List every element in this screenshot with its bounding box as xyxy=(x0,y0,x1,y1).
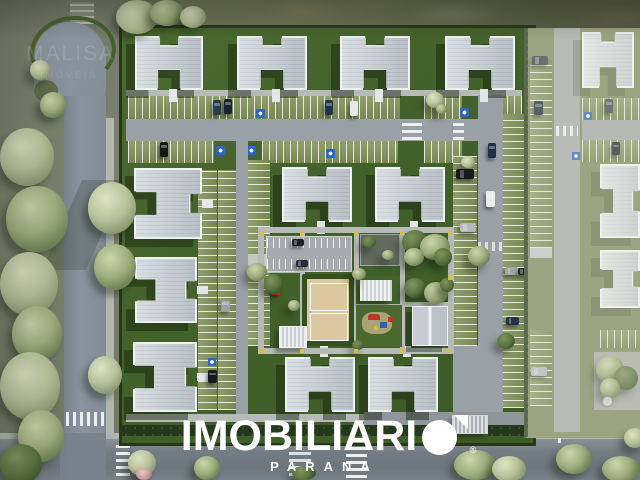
apartment-building xyxy=(134,168,202,239)
parking-stall-lines xyxy=(267,259,349,269)
car xyxy=(505,267,518,275)
court-outline xyxy=(310,283,348,311)
tree xyxy=(461,156,475,168)
apartment-building xyxy=(285,357,355,412)
yellow-path-marker xyxy=(448,276,452,280)
internal-road xyxy=(453,345,503,415)
car xyxy=(325,100,333,115)
yellow-path-marker xyxy=(400,231,404,235)
entrance-walk xyxy=(480,89,488,102)
tree xyxy=(288,300,300,311)
tree xyxy=(94,244,136,290)
entrance-gate xyxy=(452,415,488,434)
tree xyxy=(40,92,66,118)
tree xyxy=(404,278,426,298)
parking-row xyxy=(128,141,214,163)
car xyxy=(488,143,496,158)
yellow-path-marker xyxy=(400,349,404,353)
tree xyxy=(492,456,526,480)
car xyxy=(224,99,232,114)
court-outline xyxy=(310,313,348,341)
tree xyxy=(6,186,68,252)
tree xyxy=(468,246,490,266)
crosswalk xyxy=(66,412,104,426)
car xyxy=(486,191,495,207)
building-roof xyxy=(412,306,448,346)
pergola xyxy=(360,280,392,301)
accessible-parking-icon xyxy=(460,108,469,117)
play-structure-red xyxy=(368,314,380,320)
tree xyxy=(292,466,316,480)
pavilion xyxy=(279,326,307,348)
tree xyxy=(497,333,515,349)
tree xyxy=(0,444,42,480)
yellow-path-marker xyxy=(300,349,304,353)
yellow-path-marker xyxy=(259,231,263,235)
entrance-walk xyxy=(375,89,383,102)
apartment-building xyxy=(282,167,352,222)
accessible-parking-icon xyxy=(256,109,265,118)
apartment-building xyxy=(445,36,515,90)
hedge xyxy=(122,425,450,436)
yellow-path-marker xyxy=(259,349,263,353)
apartment-building xyxy=(340,36,410,90)
play-structure-red xyxy=(388,317,393,322)
apartment-building xyxy=(135,36,203,90)
accessible-parking-icon xyxy=(326,149,335,158)
parking-row xyxy=(218,170,236,410)
play-structure-yellow xyxy=(374,326,378,330)
apartment-building xyxy=(133,342,197,412)
parking-stall-lines xyxy=(267,238,349,248)
car xyxy=(208,370,217,383)
entrance-walk xyxy=(272,89,280,102)
haze-overlay xyxy=(524,28,640,438)
play-structure-blue xyxy=(380,322,387,328)
car xyxy=(506,317,519,325)
tree xyxy=(602,456,640,480)
tree xyxy=(454,450,496,480)
tree xyxy=(624,428,640,448)
car xyxy=(213,100,221,115)
tree xyxy=(180,6,206,28)
apartment-building xyxy=(368,357,438,412)
tree xyxy=(0,128,54,186)
crosswalk xyxy=(453,120,464,140)
tree xyxy=(362,236,376,248)
entrance-walk xyxy=(197,373,208,381)
car xyxy=(160,142,168,157)
crosswalk xyxy=(402,120,422,140)
car xyxy=(221,300,230,312)
parking-aisle xyxy=(236,119,248,415)
road-arrow-marking xyxy=(216,146,225,155)
apartment-building xyxy=(237,36,307,90)
tree xyxy=(440,278,454,292)
party-hall xyxy=(412,306,448,346)
tree xyxy=(0,352,60,420)
car xyxy=(296,260,308,267)
yellow-path-marker xyxy=(446,349,450,353)
tree xyxy=(264,274,282,294)
tree xyxy=(247,263,267,281)
car xyxy=(350,101,358,116)
yellow-path-marker xyxy=(448,231,452,235)
tree xyxy=(88,182,136,234)
yellow-path-marker xyxy=(354,349,358,353)
tree xyxy=(88,356,122,394)
road-junction xyxy=(60,433,106,480)
apartment-building xyxy=(375,167,445,222)
entrance-walk xyxy=(202,200,213,208)
entrance-walk xyxy=(197,286,208,294)
tree xyxy=(150,0,184,26)
apartment-building xyxy=(135,257,197,323)
accessible-parking-icon xyxy=(208,358,216,366)
courtyard-path xyxy=(258,227,264,354)
car xyxy=(292,239,304,246)
tree xyxy=(404,248,424,266)
tree xyxy=(136,468,152,480)
hedge xyxy=(488,425,527,436)
tree xyxy=(30,60,50,80)
yellow-path-marker xyxy=(354,231,358,235)
tree xyxy=(194,456,220,480)
aerial-render-scene: MALISA IMÓVEIS IMOBILIARI ® PARANA xyxy=(0,0,640,480)
tree xyxy=(352,268,366,280)
car xyxy=(456,169,474,179)
yellow-path-marker xyxy=(300,231,304,235)
entrance-walk xyxy=(169,89,177,102)
road-arrow-marking xyxy=(247,146,256,155)
tree xyxy=(434,248,452,266)
car xyxy=(460,223,476,232)
tree xyxy=(556,444,592,474)
tree xyxy=(382,250,394,260)
tree xyxy=(436,104,447,114)
